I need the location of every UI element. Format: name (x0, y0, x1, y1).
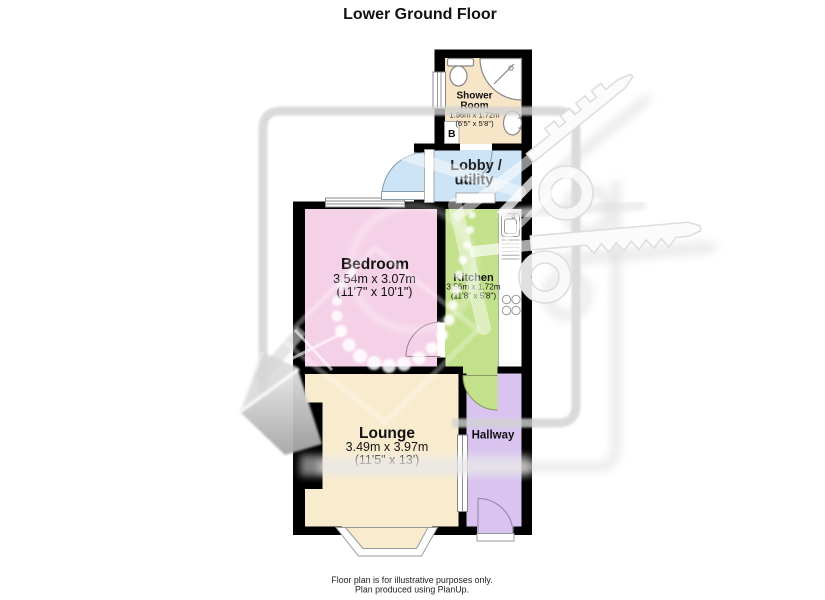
svg-text:3.49m x 3.97m: 3.49m x 3.97m (346, 440, 429, 454)
svg-text:B: B (448, 128, 456, 140)
svg-text:Lower Ground Floor: Lower Ground Floor (343, 6, 497, 23)
svg-text:(11'7" x 10'1"): (11'7" x 10'1") (337, 285, 413, 299)
svg-text:Hallway: Hallway (472, 430, 515, 442)
svg-text:Floor plan is for illustrative: Floor plan is for illustrative purposes … (331, 575, 492, 585)
svg-text:Plan produced using PlanUp.: Plan produced using PlanUp. (355, 585, 469, 595)
svg-text:(6'5" x 5'8"): (6'5" x 5'8") (455, 119, 494, 128)
